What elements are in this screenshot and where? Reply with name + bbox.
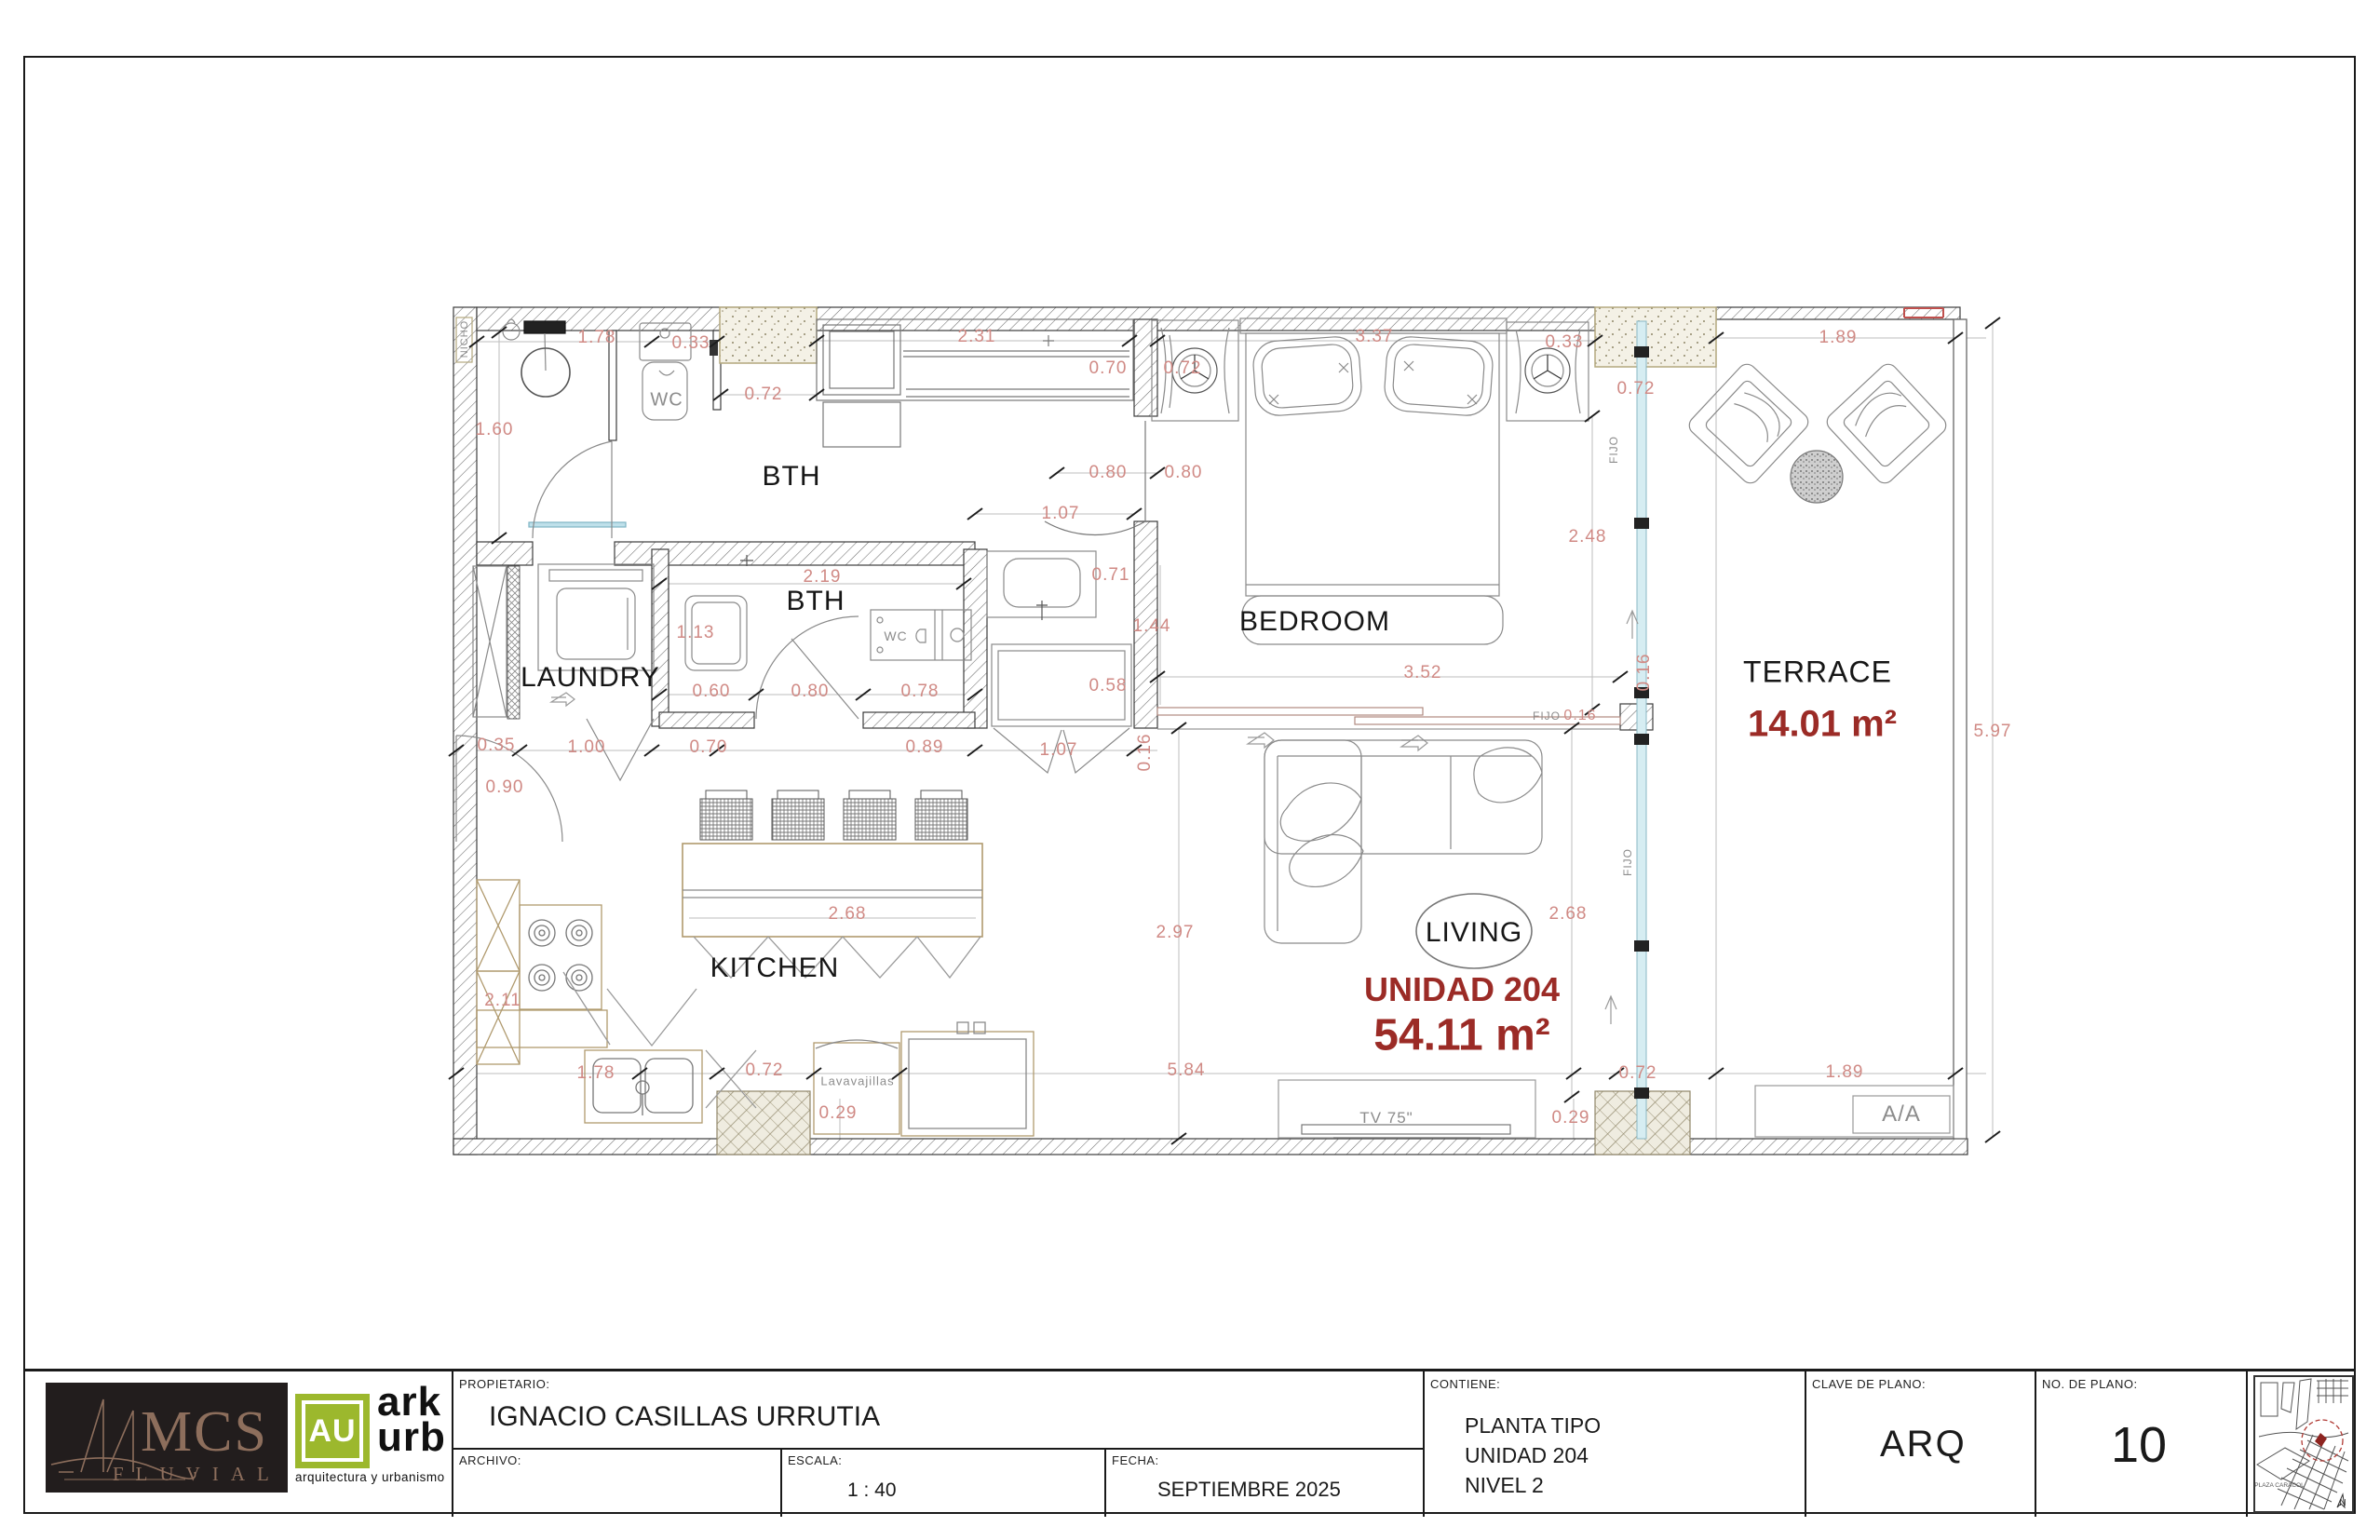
dimension-label: 0.60: [693, 682, 731, 702]
map-label: PLAZA CARACOL: [2254, 1482, 2305, 1489]
dimension-label: 1.00: [568, 737, 606, 758]
dimension-label: 5.84: [1168, 1060, 1206, 1081]
dimension-label: 0.29: [819, 1103, 858, 1124]
annotation-label: Lavavajillas: [820, 1074, 894, 1088]
dimension-label: 1.13: [677, 623, 715, 643]
dimension-label: 0.71: [1092, 565, 1130, 586]
annotation-label: FIJO: [1533, 709, 1561, 723]
annotation-label: FIJO: [1621, 848, 1634, 876]
arkurb-tagline: arquitectura y urbanismo: [295, 1470, 445, 1484]
annotation-label: FIJO: [1607, 436, 1620, 464]
dimension-label: 0.72: [1164, 358, 1202, 379]
drawing-sheet: BTHBTHLAUNDRYKITCHENBEDROOMLIVINGTERRACE…: [0, 0, 2380, 1540]
contiene-label: CONTIENE:: [1430, 1377, 1500, 1391]
room-label: KITCHEN: [710, 952, 840, 984]
dimension-label: 0.72: [745, 385, 783, 405]
mcs-wordmark: MCS: [141, 1399, 268, 1466]
dimension-label: 2.11: [484, 991, 521, 1011]
dimension-label: 0.72: [1619, 1063, 1657, 1084]
dimension-label: 2.19: [804, 567, 842, 588]
location-map: PLAZA CARACOL N: [2253, 1375, 2354, 1513]
plan-labels: BTHBTHLAUNDRYKITCHENBEDROOMLIVINGTERRACE…: [0, 0, 2380, 1540]
dimension-label: 1.44: [1133, 616, 1171, 637]
dimension-label: 0.72: [1617, 379, 1656, 399]
numero-label: NO. DE PLANO:: [2042, 1377, 2138, 1391]
room-label: TERRACE: [1743, 655, 1892, 690]
dimension-label: 0.58: [1089, 676, 1128, 696]
dimension-label: 1.60: [476, 420, 514, 440]
clave-value: ARQ: [1880, 1424, 1967, 1466]
dimension-label: 1.78: [577, 1063, 615, 1084]
dimension-label: 2.97: [1156, 923, 1195, 943]
arkurb-wordmark: arkurb: [377, 1385, 446, 1455]
dimension-label: 0.80: [791, 682, 830, 702]
mcs-logo-box: MCS FLUVIAL: [46, 1383, 288, 1493]
room-label: BTH: [787, 586, 845, 617]
dimension-label: 2.68: [829, 904, 867, 925]
arkurb-logo: AU arkurb arquitectura y urbanismo: [295, 1390, 455, 1493]
title-block: MCS FLUVIAL AU arkurb arquitectura y urb…: [23, 1369, 2356, 1514]
dimension-label: 0.80: [1089, 463, 1128, 483]
archivo-label: ARCHIVO:: [459, 1453, 521, 1467]
dimension-label: 0.33: [1546, 332, 1584, 353]
fecha-value: SEPTIEMBRE 2025: [1157, 1478, 1341, 1502]
annotation-label: WC: [650, 390, 683, 412]
clave-label: CLAVE DE PLANO:: [1812, 1377, 1926, 1391]
dimension-label: 1.78: [578, 328, 616, 348]
annotation-label: A/A: [1882, 1101, 1921, 1128]
area-label: 54.11 m²: [1373, 1010, 1549, 1061]
numero-value: 10: [2111, 1416, 2167, 1474]
dimension-label: 2.48: [1569, 527, 1607, 547]
dimension-label: 3.52: [1404, 663, 1442, 683]
annotation-label: WC: [884, 628, 907, 643]
dimension-label: 0.35: [478, 736, 516, 756]
dimension-label: 0.70: [690, 737, 728, 758]
dimension-label: 2.31: [958, 327, 996, 347]
propietario-value: IGNACIO CASILLAS URRUTIA: [489, 1401, 880, 1433]
dimension-label: 0.80: [1165, 463, 1203, 483]
dimension-label: 0.72: [746, 1060, 784, 1081]
dimension-label: 0.78: [901, 682, 940, 702]
dimension-label: 0.16: [1135, 734, 1156, 772]
room-label: BEDROOM: [1239, 606, 1390, 638]
annotation-label: TV 75": [1359, 1109, 1413, 1128]
dimension-label: 0.29: [1552, 1108, 1590, 1128]
dimension-label: 0.70: [1089, 358, 1128, 379]
annotation-label: NICHO: [459, 320, 470, 358]
dimension-label: 1.89: [1819, 328, 1858, 348]
contiene-value: PLANTA TIPO UNIDAD 204 NIVEL 2: [1465, 1411, 1601, 1500]
dimension-label: 0.16: [1563, 708, 1596, 724]
dimension-label: 1.89: [1826, 1062, 1864, 1083]
au-badge-icon: AU: [295, 1394, 370, 1468]
fecha-label: FECHA:: [1112, 1453, 1159, 1467]
dimension-label: 1.07: [1042, 504, 1080, 524]
dimension-label: 3.37: [1356, 327, 1394, 347]
room-label: LAUNDRY: [521, 662, 660, 694]
dimension-label: 1.07: [1040, 740, 1078, 761]
fluvial-wordmark: FLUVIAL: [113, 1463, 281, 1486]
dimension-label: 0.90: [486, 777, 524, 798]
area-label: 14.01 m²: [1748, 704, 1897, 746]
dimension-label: 0.33: [672, 333, 710, 354]
dimension-label: 5.97: [1974, 722, 2012, 742]
propietario-label: PROPIETARIO:: [459, 1377, 550, 1391]
dimension-label: 0.16: [1634, 654, 1655, 692]
room-label: BTH: [763, 461, 821, 493]
area-label: UNIDAD 204: [1364, 970, 1560, 1009]
room-label: LIVING: [1426, 917, 1522, 949]
escala-label: ESCALA:: [788, 1453, 842, 1467]
dimension-label: 2.68: [1549, 904, 1588, 925]
escala-value: 1 : 40: [847, 1479, 897, 1502]
dimension-label: 0.89: [906, 737, 944, 758]
